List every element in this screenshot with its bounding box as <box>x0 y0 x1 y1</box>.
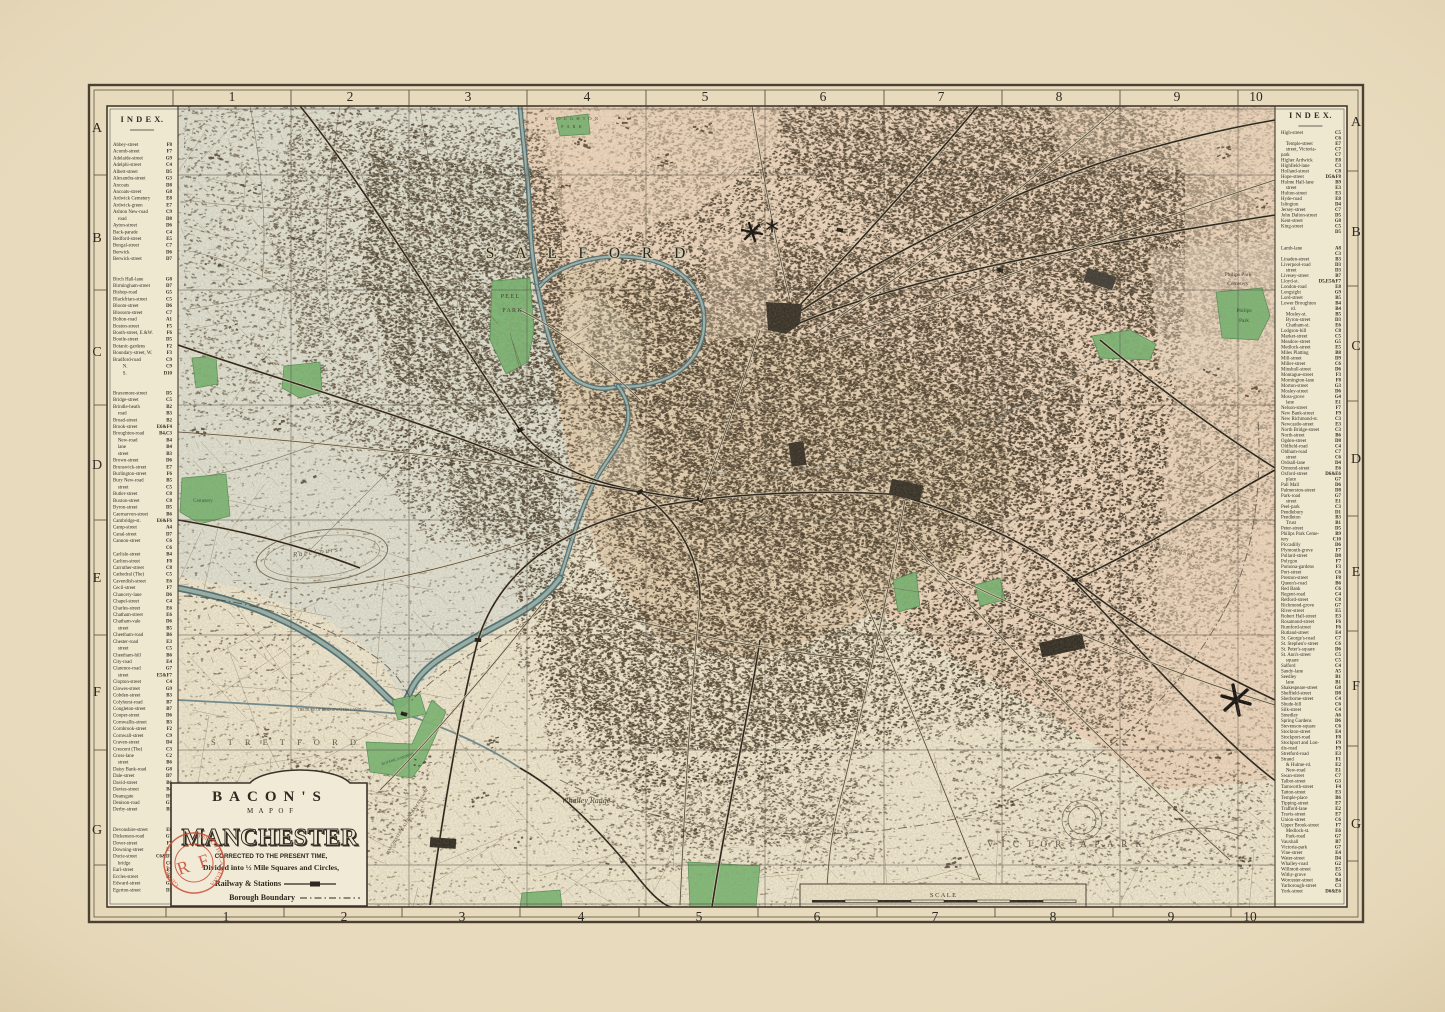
svg-text:Lord-street: Lord-street <box>1281 296 1303 301</box>
svg-text:Chatham-st.: Chatham-st. <box>1281 323 1310 328</box>
svg-text:C6: C6 <box>1335 818 1342 823</box>
svg-text:Rutland-street: Rutland-street <box>1281 631 1309 636</box>
svg-text:Regent-road: Regent-road <box>1281 593 1306 598</box>
svg-text:Trafford-lane: Trafford-lane <box>1281 807 1307 812</box>
svg-text:Upper Brook-street: Upper Brook-street <box>1281 824 1320 829</box>
svg-text:Tipping-street: Tipping-street <box>1281 802 1309 807</box>
svg-text:Bootle-street: Bootle-street <box>113 338 139 343</box>
svg-text:C8: C8 <box>1335 169 1342 174</box>
svg-text:F8: F8 <box>167 559 173 564</box>
svg-text:G3: G3 <box>166 177 173 182</box>
svg-text:C9: C9 <box>166 358 173 363</box>
svg-text:C4: C4 <box>1335 444 1342 449</box>
svg-text:B4: B4 <box>166 438 172 443</box>
svg-text:Peel-park: Peel-park <box>1281 505 1300 510</box>
svg-text:Birmingham-street: Birmingham-street <box>113 284 151 289</box>
svg-text:D3: D3 <box>1335 318 1342 323</box>
svg-text:Denison-road: Denison-road <box>113 801 140 806</box>
svg-text:D5,E5&F7: D5,E5&F7 <box>1319 279 1342 284</box>
svg-text:Derby-street: Derby-street <box>113 808 138 813</box>
svg-text:G9: G9 <box>166 156 173 161</box>
svg-text:C7: C7 <box>1335 450 1342 455</box>
svg-text:E4: E4 <box>1335 631 1341 636</box>
svg-text:7: 7 <box>932 909 939 924</box>
svg-text:Alexandra-street: Alexandra-street <box>113 177 146 182</box>
svg-text:Brindle-heath: Brindle-heath <box>113 405 140 410</box>
svg-text:Union-street: Union-street <box>1281 818 1306 823</box>
svg-text:D: D <box>1351 452 1361 467</box>
svg-text:Ormond-street: Ormond-street <box>1281 466 1310 471</box>
svg-text:G2: G2 <box>1335 862 1342 867</box>
svg-text:Hope-street: Hope-street <box>1281 175 1304 180</box>
svg-text:Philips Park Ceme-: Philips Park Ceme- <box>1281 532 1319 537</box>
svg-text:E1: E1 <box>1335 499 1341 504</box>
svg-text:Downing-street: Downing-street <box>113 848 144 853</box>
svg-text:1: 1 <box>223 909 230 924</box>
svg-text:B8: B8 <box>1335 351 1341 356</box>
svg-text:Chapel-street: Chapel-street <box>113 600 140 605</box>
svg-text:E3: E3 <box>1335 752 1341 757</box>
svg-text:Colyhurst-road: Colyhurst-road <box>113 700 143 705</box>
svg-text:Clowes-street: Clowes-street <box>113 687 141 692</box>
svg-text:Oxford-street: Oxford-street <box>1281 472 1308 477</box>
svg-text:B: B <box>92 231 101 246</box>
svg-text:Hulme Hall-lane: Hulme Hall-lane <box>1281 180 1314 185</box>
svg-text:bridge: bridge <box>113 861 130 866</box>
svg-text:C4: C4 <box>166 230 173 235</box>
svg-text:River-street: River-street <box>1281 609 1305 614</box>
svg-text:F8: F8 <box>167 143 173 148</box>
svg-text:King-street: King-street <box>1281 224 1304 229</box>
svg-text:Talbot-street: Talbot-street <box>1281 780 1306 785</box>
svg-text:Mosley-street: Mosley-street <box>1281 389 1309 394</box>
svg-text:Railway & Stations: Railway & Stations <box>215 879 281 888</box>
svg-text:G3: G3 <box>1335 384 1342 389</box>
svg-text:C3: C3 <box>1335 417 1342 422</box>
svg-text:Willmott-street: Willmott-street <box>1281 868 1311 873</box>
svg-text:6: 6 <box>820 89 827 104</box>
svg-text:E6: E6 <box>166 606 172 611</box>
svg-text:London-road: London-road <box>1281 285 1307 290</box>
svg-text:A4: A4 <box>166 526 173 531</box>
svg-text:John Dalton-street: John Dalton-street <box>1281 213 1318 218</box>
svg-text:E6: E6 <box>166 579 172 584</box>
svg-text:C3: C3 <box>1335 164 1342 169</box>
svg-text:F5: F5 <box>167 324 173 329</box>
svg-text:Daisy Bank-road: Daisy Bank-road <box>113 767 147 772</box>
svg-text:Yarborough-street: Yarborough-street <box>1281 884 1317 889</box>
svg-text:E3: E3 <box>166 640 172 645</box>
svg-text:C8: C8 <box>166 499 173 504</box>
svg-text:Port-street: Port-street <box>1281 571 1302 576</box>
svg-text:F: F <box>1352 679 1360 694</box>
svg-text:D5: D5 <box>166 506 173 511</box>
svg-text:E5: E5 <box>1335 609 1341 614</box>
svg-text:E4: E4 <box>1335 851 1341 856</box>
svg-text:C5: C5 <box>1335 131 1342 136</box>
svg-text:G8: G8 <box>1335 219 1342 224</box>
svg-text:B7: B7 <box>1335 840 1341 845</box>
svg-text:Clarence-road: Clarence-road <box>113 667 141 672</box>
svg-text:Borough Boundary: Borough Boundary <box>229 893 295 902</box>
svg-text:B4: B4 <box>166 445 172 450</box>
svg-text:D8: D8 <box>1335 488 1342 493</box>
svg-text:C6: C6 <box>1335 455 1342 460</box>
svg-text:Kent-street: Kent-street <box>1281 219 1303 224</box>
svg-text:D7: D7 <box>166 284 173 289</box>
svg-text:Cross-lane: Cross-lane <box>113 754 134 759</box>
svg-text:C4: C4 <box>166 680 173 685</box>
svg-text:Retford-street: Retford-street <box>1281 598 1309 603</box>
svg-text:Broad-street: Broad-street <box>113 418 138 423</box>
svg-text:G7: G7 <box>1335 494 1342 499</box>
svg-text:Salford: Salford <box>1281 664 1296 669</box>
svg-text:Camp-street: Camp-street <box>113 526 138 531</box>
svg-text:Carlisle-street: Carlisle-street <box>113 553 141 558</box>
svg-text:C5: C5 <box>1335 224 1342 229</box>
svg-text:C: C <box>1351 339 1360 354</box>
svg-text:C4: C4 <box>166 163 173 168</box>
svg-text:street: street <box>113 761 129 766</box>
svg-text:2: 2 <box>347 89 354 104</box>
svg-text:Abbey-street: Abbey-street <box>113 143 139 148</box>
svg-text:D8: D8 <box>166 183 173 188</box>
svg-text:Bedford-street: Bedford-street <box>113 237 142 242</box>
svg-text:Park-road: Park-road <box>1281 494 1301 499</box>
svg-text:D6: D6 <box>166 714 173 719</box>
svg-text:Bolton-road: Bolton-road <box>113 318 137 323</box>
svg-text:B4,C3: B4,C3 <box>159 432 172 437</box>
svg-text:Richmond-grove: Richmond-grove <box>1281 604 1314 609</box>
svg-text:Cheetham-hill: Cheetham-hill <box>113 653 142 658</box>
svg-text:E7: E7 <box>166 465 172 470</box>
svg-text:Strand: Strand <box>1281 758 1294 763</box>
svg-text:Whalley-road: Whalley-road <box>1281 862 1308 867</box>
svg-text:G8: G8 <box>1335 686 1342 691</box>
svg-text:C3: C3 <box>1335 505 1342 510</box>
svg-text:Dickenson-road: Dickenson-road <box>113 835 145 840</box>
svg-text:E3: E3 <box>1335 422 1341 427</box>
svg-text:Brown-street: Brown-street <box>113 459 139 464</box>
svg-text:Cavendish-street: Cavendish-street <box>113 579 147 584</box>
svg-text:Palmerston-street: Palmerston-street <box>1281 488 1316 493</box>
svg-text:place: place <box>1281 477 1296 482</box>
svg-text:F6: F6 <box>167 472 173 477</box>
svg-text:Medlock-street: Medlock-street <box>1281 345 1311 350</box>
svg-text:C4: C4 <box>166 600 173 605</box>
svg-text:Chatham-vale: Chatham-vale <box>113 620 140 625</box>
svg-text:street: street <box>113 626 129 631</box>
svg-text:C8: C8 <box>1335 329 1342 334</box>
svg-text:E8: E8 <box>1335 285 1341 290</box>
svg-text:Edward-street: Edward-street <box>113 882 141 887</box>
svg-text:Booth-street, E.&W.: Booth-street, E.&W. <box>113 331 153 336</box>
svg-text:CORRECTED TO THE PRESENT TIME,: CORRECTED TO THE PRESENT TIME, <box>215 853 328 860</box>
svg-text:Liverpool-road: Liverpool-road <box>1281 263 1311 268</box>
svg-text:9: 9 <box>1168 909 1175 924</box>
svg-text:Botanic-gardens: Botanic-gardens <box>113 344 145 349</box>
svg-text:B4: B4 <box>1335 307 1341 312</box>
svg-text:City-road: City-road <box>113 660 132 665</box>
svg-text:F6: F6 <box>167 331 173 336</box>
svg-text:Mosley-st.: Mosley-st. <box>1281 312 1307 317</box>
svg-text:C5: C5 <box>1335 334 1342 339</box>
svg-text:D5: D5 <box>1335 230 1342 235</box>
svg-text:Water-street: Water-street <box>1281 857 1305 862</box>
svg-text:B4: B4 <box>1335 879 1341 884</box>
svg-text:Caernarvon-street: Caernarvon-street <box>113 512 149 517</box>
svg-text:B3: B3 <box>1335 257 1341 262</box>
svg-text:10: 10 <box>1249 89 1263 104</box>
svg-text:Minshull-street: Minshull-street <box>1281 367 1312 372</box>
svg-text:A8: A8 <box>1335 246 1342 251</box>
svg-text:Cornwall-street: Cornwall-street <box>113 734 144 739</box>
svg-text:D10: D10 <box>164 371 173 376</box>
svg-text:C8: C8 <box>166 566 173 571</box>
svg-text:Cannon-street: Cannon-street <box>113 539 141 544</box>
svg-text:B7: B7 <box>1335 274 1341 279</box>
svg-text:BACON'S: BACON'S <box>212 789 328 805</box>
svg-text:Lloyd-st.: Lloyd-st. <box>1281 279 1299 284</box>
svg-text:Stockton-street: Stockton-street <box>1281 730 1311 735</box>
svg-text:D6: D6 <box>166 620 173 625</box>
svg-text:C3: C3 <box>1335 252 1342 257</box>
svg-text:B3: B3 <box>166 720 172 725</box>
svg-text:D6: D6 <box>1335 543 1342 548</box>
svg-text:D7: D7 <box>166 774 173 779</box>
svg-text:C7: C7 <box>1335 208 1342 213</box>
svg-text:G3: G3 <box>1335 780 1342 785</box>
svg-text:Broughton-road: Broughton-road <box>113 432 145 437</box>
svg-text:E3: E3 <box>1335 615 1341 620</box>
svg-text:F2: F2 <box>167 344 173 349</box>
svg-text:Ordsall-lane: Ordsall-lane <box>1281 461 1305 466</box>
svg-text:C6: C6 <box>1335 136 1342 141</box>
svg-text:Pendlebury: Pendlebury <box>1281 510 1304 515</box>
svg-text:North Bridge-street: North Bridge-street <box>1281 428 1320 433</box>
svg-text:C3: C3 <box>1335 428 1342 433</box>
svg-text:Swan-street: Swan-street <box>1281 774 1305 779</box>
svg-text:A6: A6 <box>1335 714 1342 719</box>
svg-text:Morton-street: Morton-street <box>1281 384 1309 389</box>
svg-text:Oldham-road: Oldham-road <box>1281 450 1308 455</box>
svg-text:St. George's-road: St. George's-road <box>1281 637 1315 642</box>
svg-text:F9: F9 <box>1336 411 1342 416</box>
svg-text:street: street <box>113 452 129 457</box>
svg-text:Newcastle-street: Newcastle-street <box>1281 422 1314 427</box>
svg-text:F8: F8 <box>1336 736 1342 741</box>
svg-text:E7: E7 <box>166 203 172 208</box>
svg-text:C7: C7 <box>1335 153 1342 158</box>
svg-text:B3: B3 <box>1335 516 1341 521</box>
svg-text:Ducie-street: Ducie-street <box>113 855 138 860</box>
svg-text:G8: G8 <box>166 190 173 195</box>
svg-text:C8: C8 <box>1335 598 1342 603</box>
svg-text:Carlton-street: Carlton-street <box>113 559 141 564</box>
svg-text:Dover-street: Dover-street <box>113 841 138 846</box>
svg-text:D3: D3 <box>1335 263 1342 268</box>
svg-text:Back-parade: Back-parade <box>113 230 138 235</box>
svg-text:C5: C5 <box>166 647 173 652</box>
svg-text:B5: B5 <box>1335 296 1341 301</box>
svg-text:Medlock-st.: Medlock-st. <box>1281 829 1309 834</box>
svg-text:New-road: New-road <box>113 438 138 443</box>
svg-text:C3: C3 <box>166 747 173 752</box>
svg-text:St. Stephen's-street: St. Stephen's-street <box>1281 642 1319 647</box>
svg-text:Acomb-street: Acomb-street <box>113 150 140 155</box>
svg-text:D: D <box>92 458 102 473</box>
svg-text:Plymouth-grove: Plymouth-grove <box>1281 549 1313 554</box>
svg-text:Stockport-road: Stockport-road <box>1281 736 1311 741</box>
svg-text:St. Peter's-square: St. Peter's-square <box>1281 648 1315 653</box>
svg-text:B3: B3 <box>166 694 172 699</box>
svg-text:lane: lane <box>1281 400 1294 405</box>
svg-text:E6&F4: E6&F4 <box>157 425 173 430</box>
svg-text:4: 4 <box>584 89 591 104</box>
svg-text:E3: E3 <box>1335 191 1341 196</box>
svg-text:E8: E8 <box>1335 158 1341 163</box>
svg-text:F7: F7 <box>1336 824 1342 829</box>
svg-text:Eccles-street: Eccles-street <box>113 875 139 880</box>
svg-text:Tamworth-street: Tamworth-street <box>1281 785 1314 790</box>
svg-text:Jersey-street: Jersey-street <box>1281 208 1306 213</box>
svg-text:C5: C5 <box>1335 653 1342 658</box>
svg-text:Bloom-street: Bloom-street <box>113 304 139 309</box>
svg-text:B7: B7 <box>166 707 172 712</box>
svg-text:York-street: York-street <box>1281 890 1303 895</box>
svg-text:Ardwick Cemetery: Ardwick Cemetery <box>113 197 151 202</box>
svg-text:Stretford-road: Stretford-road <box>1281 752 1309 757</box>
svg-text:7: 7 <box>938 89 945 104</box>
svg-text:F7: F7 <box>1336 549 1342 554</box>
svg-text:B9: B9 <box>1335 180 1341 185</box>
svg-text:Piccadilly: Piccadilly <box>1281 543 1301 548</box>
svg-text:D4: D4 <box>1335 202 1342 207</box>
svg-text:Cathedral (The): Cathedral (The) <box>113 573 144 578</box>
svg-text:C5: C5 <box>166 485 173 490</box>
svg-text:1: 1 <box>229 89 236 104</box>
svg-text:10: 10 <box>1243 909 1257 924</box>
svg-text:S.: S. <box>113 371 127 376</box>
svg-text:F7: F7 <box>1336 560 1342 565</box>
svg-text:9: 9 <box>1174 89 1181 104</box>
svg-text:Higher Ardwick: Higher Ardwick <box>1281 158 1313 163</box>
svg-text:C5: C5 <box>1335 659 1342 664</box>
svg-text:rd.: rd. <box>1281 307 1296 312</box>
svg-text:D8: D8 <box>166 217 173 222</box>
svg-text:Sheffield-street: Sheffield-street <box>1281 692 1312 697</box>
svg-text:E4: E4 <box>166 660 172 665</box>
svg-text:5: 5 <box>696 909 703 924</box>
svg-text:C9: C9 <box>166 210 173 215</box>
svg-text:Lower Broughton: Lower Broughton <box>1281 301 1316 306</box>
svg-text:E6: E6 <box>1335 323 1341 328</box>
svg-text:2: 2 <box>341 909 348 924</box>
svg-text:street: street <box>1281 455 1297 460</box>
svg-text:E5&F7: E5&F7 <box>157 673 173 678</box>
svg-text:Queen's-road: Queen's-road <box>1281 582 1307 587</box>
svg-text:Canal-street: Canal-street <box>113 532 137 537</box>
svg-text:Mornington-lane: Mornington-lane <box>1281 378 1314 383</box>
svg-text:D1: D1 <box>1335 510 1342 515</box>
svg-text:road: road <box>113 412 127 417</box>
svg-text:B1: B1 <box>1335 521 1341 526</box>
svg-text:3: 3 <box>465 89 472 104</box>
svg-text:Rosamond-street: Rosamond-street <box>1281 620 1315 625</box>
svg-text:Pomona-gardens: Pomona-gardens <box>1281 565 1314 570</box>
svg-text:Trust: Trust <box>1281 521 1297 526</box>
svg-text:Ancoats: Ancoats <box>113 183 129 188</box>
svg-text:D5&F8: D5&F8 <box>1326 175 1342 180</box>
svg-text:Worcester-street: Worcester-street <box>1281 879 1313 884</box>
svg-text:David-street: David-street <box>113 781 138 786</box>
svg-text:F7: F7 <box>167 586 173 591</box>
svg-text:Preston-street: Preston-street <box>1281 576 1309 581</box>
svg-text:Cooper-street: Cooper-street <box>113 714 140 719</box>
svg-text:G9: G9 <box>1335 290 1342 295</box>
svg-text:Adelaide-street: Adelaide-street <box>113 156 144 161</box>
svg-text:E7: E7 <box>1335 802 1341 807</box>
svg-text:D9: D9 <box>1335 356 1342 361</box>
svg-text:street: street <box>1281 186 1297 191</box>
svg-text:Buxton-street: Buxton-street <box>113 499 140 504</box>
svg-text:B5: B5 <box>166 626 172 631</box>
svg-text:E5: E5 <box>166 237 172 242</box>
svg-text:Byron-street: Byron-street <box>113 506 138 511</box>
svg-text:Cornwallis-street: Cornwallis-street <box>113 720 147 725</box>
svg-text:D6: D6 <box>166 459 173 464</box>
svg-text:Bradford-road: Bradford-road <box>113 358 142 363</box>
svg-text:G: G <box>92 823 102 838</box>
svg-text:E7: E7 <box>1335 142 1341 147</box>
svg-text:F6: F6 <box>1336 620 1342 625</box>
svg-text:Lodgson-hill: Lodgson-hill <box>1281 329 1307 334</box>
svg-text:E1: E1 <box>1335 769 1341 774</box>
svg-text:E3: E3 <box>1335 791 1341 796</box>
svg-text:Ancoats-street: Ancoats-street <box>113 190 142 195</box>
svg-text:3: 3 <box>459 909 466 924</box>
svg-text:B6: B6 <box>1335 796 1341 801</box>
svg-text:tery: tery <box>1281 538 1289 543</box>
svg-text:New Richmond-st.: New Richmond-st. <box>1281 417 1318 422</box>
svg-text:E3: E3 <box>1335 186 1341 191</box>
svg-text:C7: C7 <box>1335 774 1342 779</box>
svg-text:B3: B3 <box>166 412 172 417</box>
svg-text:Cobden-street: Cobden-street <box>113 694 141 699</box>
svg-text:D5: D5 <box>1335 527 1342 532</box>
svg-text:D6: D6 <box>1335 483 1342 488</box>
svg-text:Birch Hall-lane: Birch Hall-lane <box>113 277 143 282</box>
svg-text:C6: C6 <box>1335 587 1342 592</box>
svg-text:E5: E5 <box>1335 868 1341 873</box>
svg-text:Stockport and Lon-: Stockport and Lon- <box>1281 741 1319 746</box>
svg-text:Albert-street: Albert-street <box>113 170 138 175</box>
svg-text:Spring Gardens: Spring Gardens <box>1281 719 1312 724</box>
svg-text:G7: G7 <box>1335 846 1342 851</box>
svg-text:Chester-road: Chester-road <box>113 640 139 645</box>
svg-text:C: C <box>92 345 101 360</box>
svg-text:Bury New-road: Bury New-road <box>113 479 144 484</box>
svg-text:Ashton New-road: Ashton New-road <box>113 210 148 215</box>
svg-text:Bengal-street: Bengal-street <box>113 244 140 249</box>
svg-text:D3: D3 <box>1335 268 1342 273</box>
svg-text:E2: E2 <box>1335 807 1341 812</box>
svg-text:Blackfriars-street: Blackfriars-street <box>113 297 148 302</box>
svg-text:Rumford-street: Rumford-street <box>1281 626 1312 631</box>
svg-text:D6: D6 <box>1335 389 1342 394</box>
svg-text:Sherborne-street: Sherborne-street <box>1281 697 1314 702</box>
svg-text:M A P O F: M A P O F <box>247 807 295 815</box>
